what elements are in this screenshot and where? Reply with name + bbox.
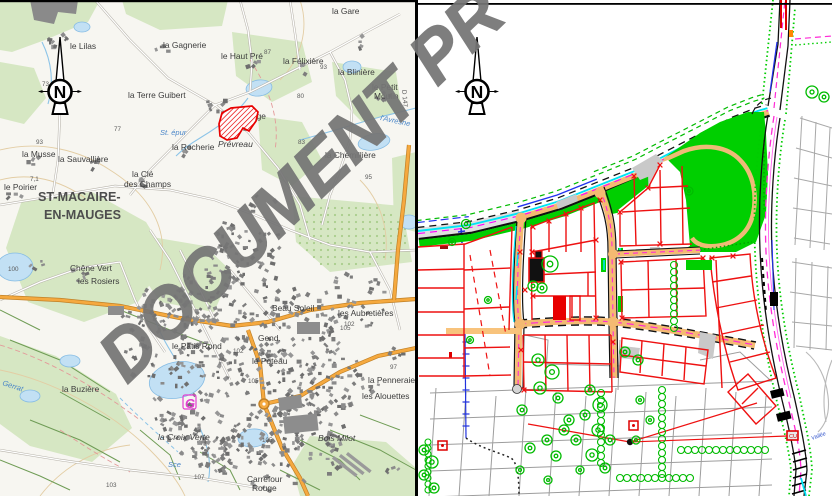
svg-text:7,1: 7,1 (30, 176, 39, 183)
svg-text:des Champs: des Champs (124, 179, 171, 189)
svg-text:St. épur: St. épur (160, 128, 187, 137)
svg-text:87: 87 (264, 49, 272, 56)
svg-text:la Terre Guibert: la Terre Guibert (128, 90, 186, 100)
svg-text:97: 97 (390, 364, 398, 371)
svg-text:105: 105 (340, 325, 351, 332)
svg-text:100: 100 (8, 266, 19, 273)
svg-text:les Rosiers: les Rosiers (78, 276, 119, 286)
svg-text:la Sauvallière: la Sauvallière (58, 154, 109, 164)
svg-text:la Gagnerie: la Gagnerie (163, 40, 207, 50)
svg-text:Rouge: Rouge (252, 483, 277, 493)
svg-text:105: 105 (248, 378, 259, 385)
svg-text:N: N (471, 82, 484, 102)
svg-text:le Haut Pré: le Haut Pré (221, 51, 263, 61)
svg-text:80: 80 (297, 93, 305, 100)
svg-text:la Croix Verte: la Croix Verte (158, 432, 210, 442)
svg-text:Gend.: Gend. (258, 333, 281, 343)
svg-text:les Aubretières: les Aubretières (338, 308, 393, 318)
svg-text:77: 77 (114, 126, 122, 133)
svg-text:EN-MAUGES: EN-MAUGES (44, 208, 121, 222)
svg-text:107: 107 (194, 474, 205, 481)
svg-text:105: 105 (262, 437, 273, 444)
svg-text:la Musse: la Musse (22, 149, 56, 159)
svg-text:Chêne Vert: Chêne Vert (70, 263, 113, 273)
svg-text:N: N (54, 82, 67, 102)
svg-text:Bois Milot: Bois Milot (318, 433, 356, 443)
svg-text:93: 93 (320, 64, 328, 71)
svg-text:Sce: Sce (168, 460, 181, 469)
svg-text:ST-MACAIRE-: ST-MACAIRE- (38, 190, 121, 204)
svg-text:la Clé: la Clé (132, 169, 154, 179)
svg-text:le Poirier: le Poirier (4, 182, 37, 192)
svg-text:le Lilas: le Lilas (70, 41, 96, 51)
svg-text:la Penneraie: la Penneraie (368, 375, 415, 385)
svg-text:le Poteau: le Poteau (252, 356, 288, 366)
svg-text:les Alouettes: les Alouettes (362, 391, 410, 401)
svg-text:103: 103 (106, 482, 117, 489)
svg-text:la Rocherie: la Rocherie (172, 142, 215, 152)
svg-text:CU: CU (789, 434, 797, 440)
svg-text:la Gare: la Gare (332, 6, 360, 16)
svg-text:la Buzière: la Buzière (62, 384, 100, 394)
svg-text:93: 93 (36, 139, 44, 146)
svg-text:la Félixière: la Félixière (283, 56, 324, 66)
svg-text:102: 102 (233, 348, 244, 355)
svg-text:Beau Soleil: Beau Soleil (272, 303, 315, 313)
